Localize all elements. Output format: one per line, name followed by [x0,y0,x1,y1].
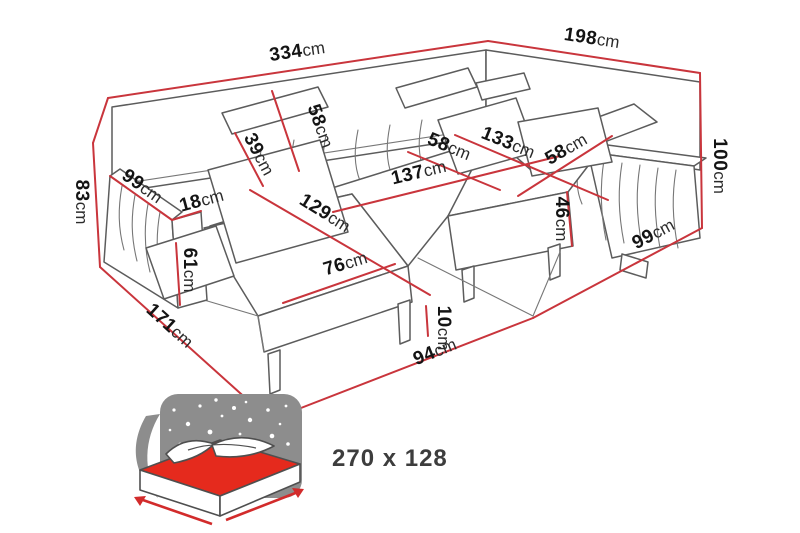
dimension-label-height-right: 100cm [709,138,730,194]
sofa-dimension-diagram: 334cm198cm100cm99cm46cm58cm133cm58cm137c… [0,0,800,533]
dimension-line-height-left [93,143,100,267]
diagram-canvas: 334cm198cm100cm99cm46cm58cm133cm58cm137c… [0,0,800,533]
dimension-label-leg-height: 10cm [433,306,454,351]
sleeping-area-size-label: 270 x 128 [332,445,448,472]
outline-line-0 [93,98,108,143]
dimension-label-seat-height: 46cm [551,197,572,242]
dimension-line-leg-height [426,306,428,336]
dimension-label-total-width: 334cm [268,37,326,66]
dimension-label-height-left: 83cm [71,180,92,225]
sofa-artwork [104,50,706,394]
dimension-label-arm-height-left: 61cm [179,248,200,293]
dimension-label-chaise-floor-length: 171cm [142,299,198,352]
dimension-line-height-right [700,73,702,228]
dimension-label-total-depth-right: 198cm [563,24,621,53]
sofa-bed-icon [134,394,304,524]
